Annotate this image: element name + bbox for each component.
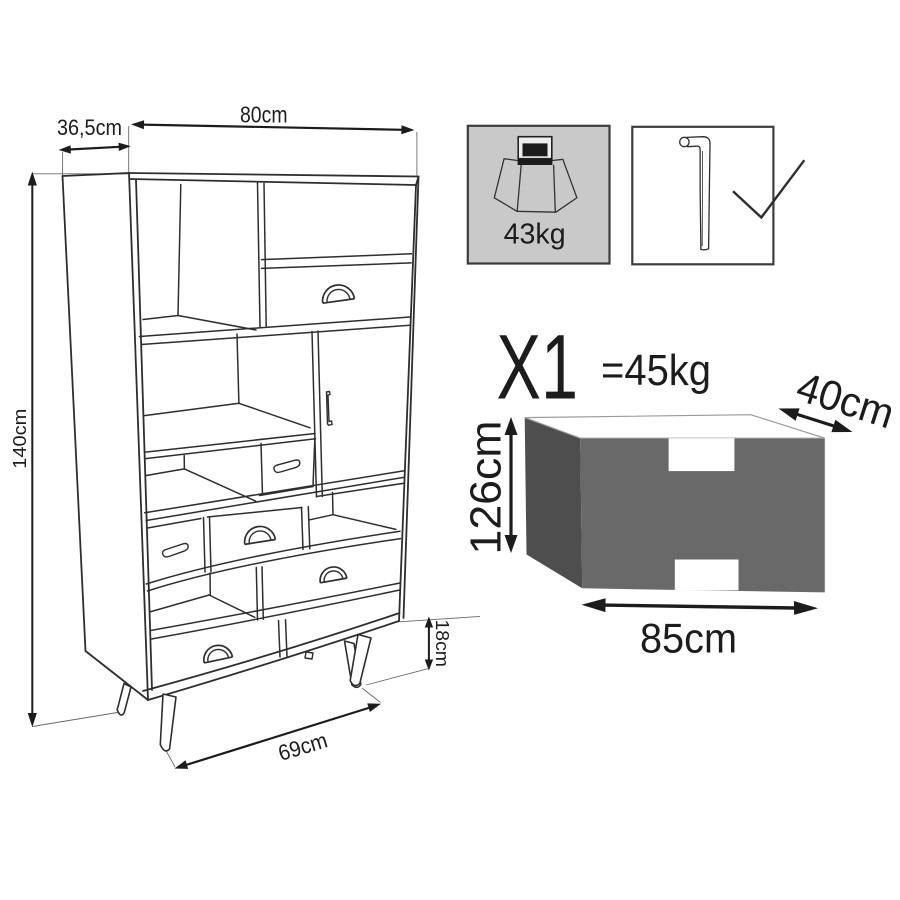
svg-text:80cm: 80cm [240,102,288,128]
svg-text:126cm: 126cm [462,421,511,555]
svg-text:=45kg: =45kg [601,346,711,395]
svg-text:18cm: 18cm [432,620,453,668]
svg-text:43kg: 43kg [504,219,566,251]
svg-text:X1: X1 [497,317,579,419]
svg-text:36,5cm: 36,5cm [57,115,122,140]
svg-text:140cm: 140cm [9,409,30,469]
svg-text:85cm: 85cm [640,615,737,662]
